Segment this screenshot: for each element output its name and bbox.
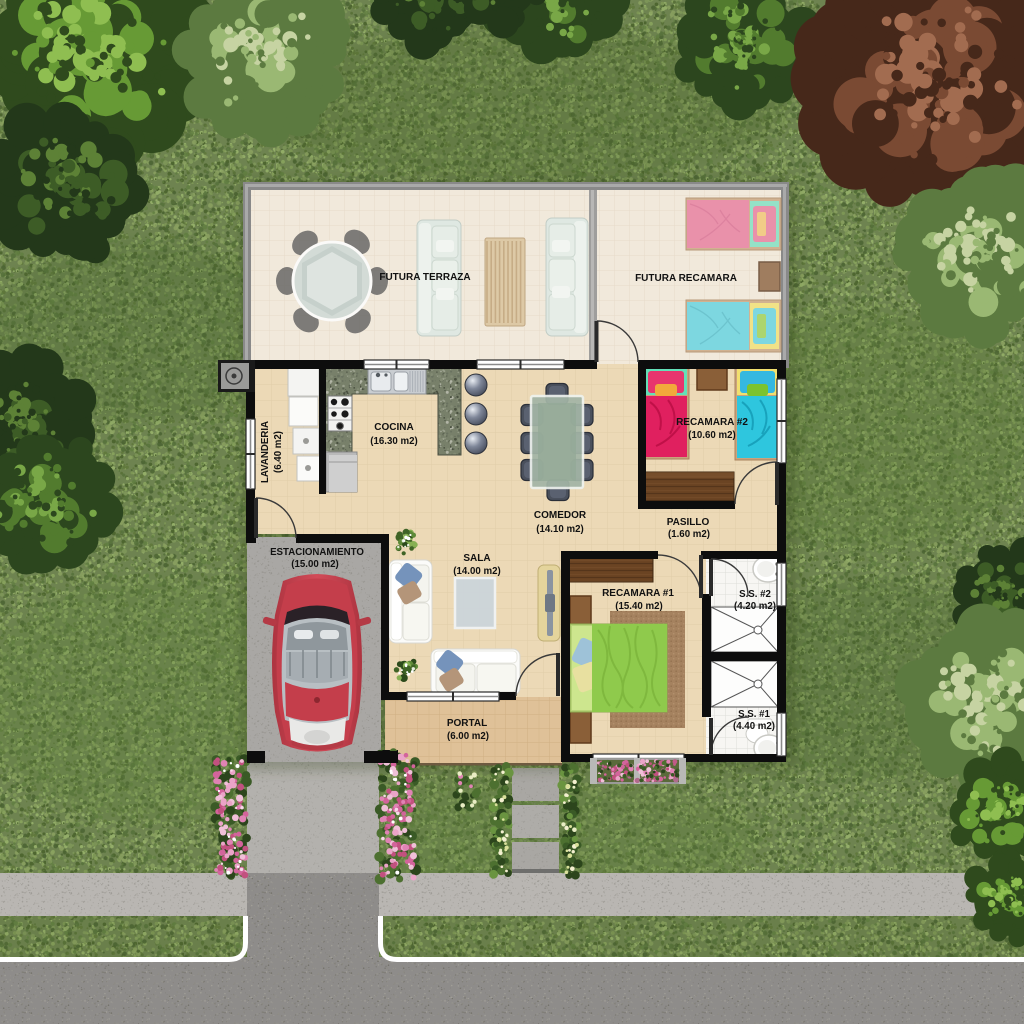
svg-text:(4.20 m2): (4.20 m2) [734,601,776,612]
svg-text:S.S. #1: S.S. #1 [738,709,770,720]
svg-text:PORTAL: PORTAL [447,718,487,729]
svg-text:COCINA: COCINA [374,422,413,433]
svg-text:RECAMARA #2: RECAMARA #2 [676,417,748,428]
svg-text:(15.00 m2): (15.00 m2) [291,559,338,570]
svg-text:FUTURA RECAMARA: FUTURA RECAMARA [635,273,737,284]
svg-text:(6.40 m2): (6.40 m2) [273,431,284,473]
svg-text:(14.10 m2): (14.10 m2) [536,524,583,535]
svg-text:FUTURA TERRAZA: FUTURA TERRAZA [379,272,470,283]
svg-text:ESTACIONAMIENTO: ESTACIONAMIENTO [270,547,364,558]
svg-text:(15.40 m2): (15.40 m2) [615,601,662,612]
svg-text:(1.60 m2): (1.60 m2) [668,529,710,540]
svg-text:SALA: SALA [463,553,490,564]
svg-text:(6.00 m2): (6.00 m2) [447,731,489,742]
svg-text:(10.60 m2): (10.60 m2) [688,430,735,441]
svg-text:LAVANDERIA: LAVANDERIA [260,421,271,483]
svg-text:S.S. #2: S.S. #2 [739,589,771,600]
svg-text:RECAMARA #1: RECAMARA #1 [602,588,674,599]
svg-text:(16.30 m2): (16.30 m2) [370,436,417,447]
svg-text:(14.00 m2): (14.00 m2) [453,566,500,577]
svg-text:(4.40 m2): (4.40 m2) [733,721,775,732]
svg-text:COMEDOR: COMEDOR [534,510,587,521]
svg-text:PASILLO: PASILLO [667,517,710,528]
